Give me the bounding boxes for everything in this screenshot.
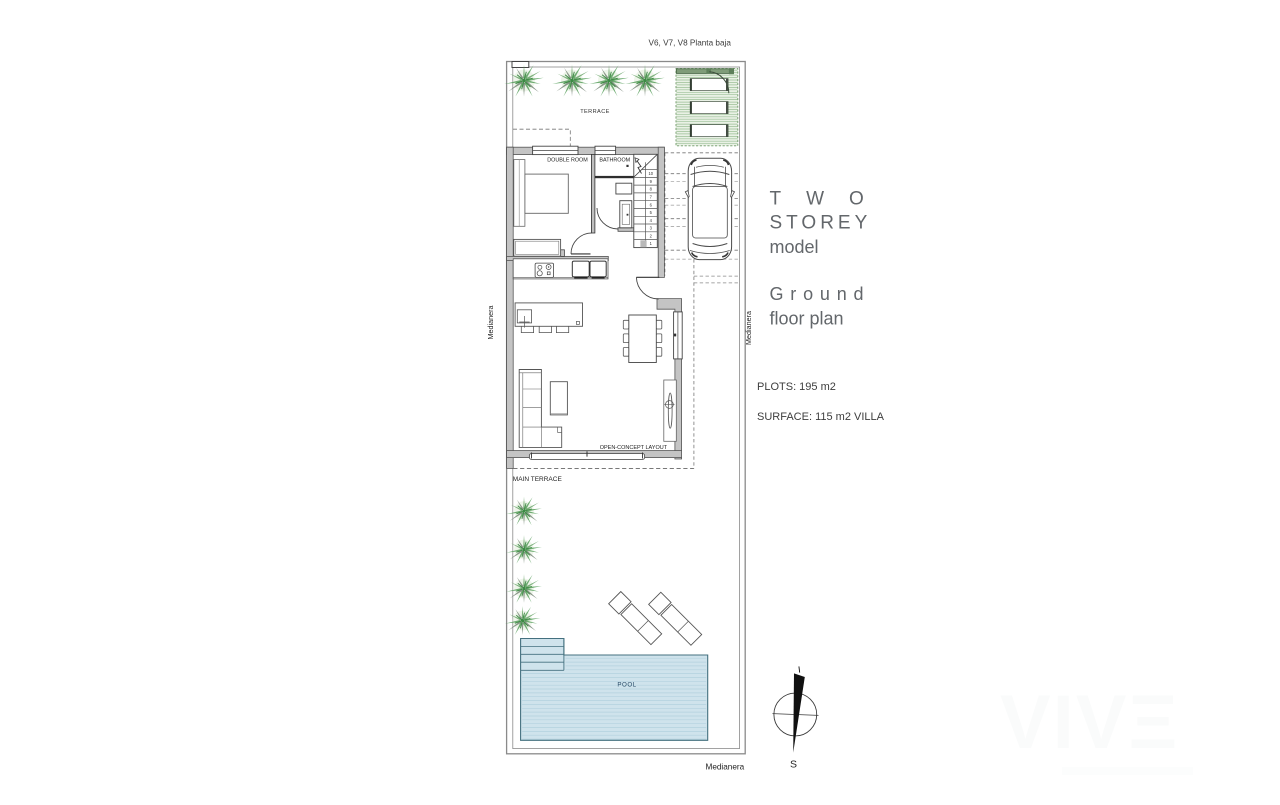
svg-text:model: model [770, 237, 819, 257]
svg-text:Medianera: Medianera [486, 306, 495, 340]
svg-text:10: 10 [649, 171, 654, 176]
svg-text:Medianera: Medianera [706, 763, 745, 772]
svg-text:BATHROOM: BATHROOM [599, 158, 630, 164]
svg-text:V6, V7, V8 Planta baja: V6, V7, V8 Planta baja [649, 39, 732, 48]
svg-text:POOL: POOL [617, 681, 636, 688]
svg-text:Medianera: Medianera [744, 311, 753, 345]
svg-text:VIVΞ: VIVΞ [1000, 680, 1179, 765]
svg-text:Ground: Ground [770, 284, 871, 304]
svg-text:SURFACE: 115 m2 VILLA: SURFACE: 115 m2 VILLA [757, 411, 885, 423]
svg-text:S: S [790, 759, 797, 771]
svg-text:floor plan: floor plan [770, 308, 844, 328]
svg-text:PLOTS: 195 m2: PLOTS: 195 m2 [757, 381, 836, 393]
svg-text:MAIN TERRACE: MAIN TERRACE [513, 476, 563, 483]
svg-text:DOUBLE ROOM: DOUBLE ROOM [547, 158, 588, 164]
svg-text:STOREY: STOREY [770, 213, 872, 234]
svg-text:OPEN-CONCEPT LAYOUT: OPEN-CONCEPT LAYOUT [600, 445, 668, 451]
svg-text:TERRACE: TERRACE [580, 109, 610, 115]
svg-text:TWO: TWO [770, 188, 889, 209]
